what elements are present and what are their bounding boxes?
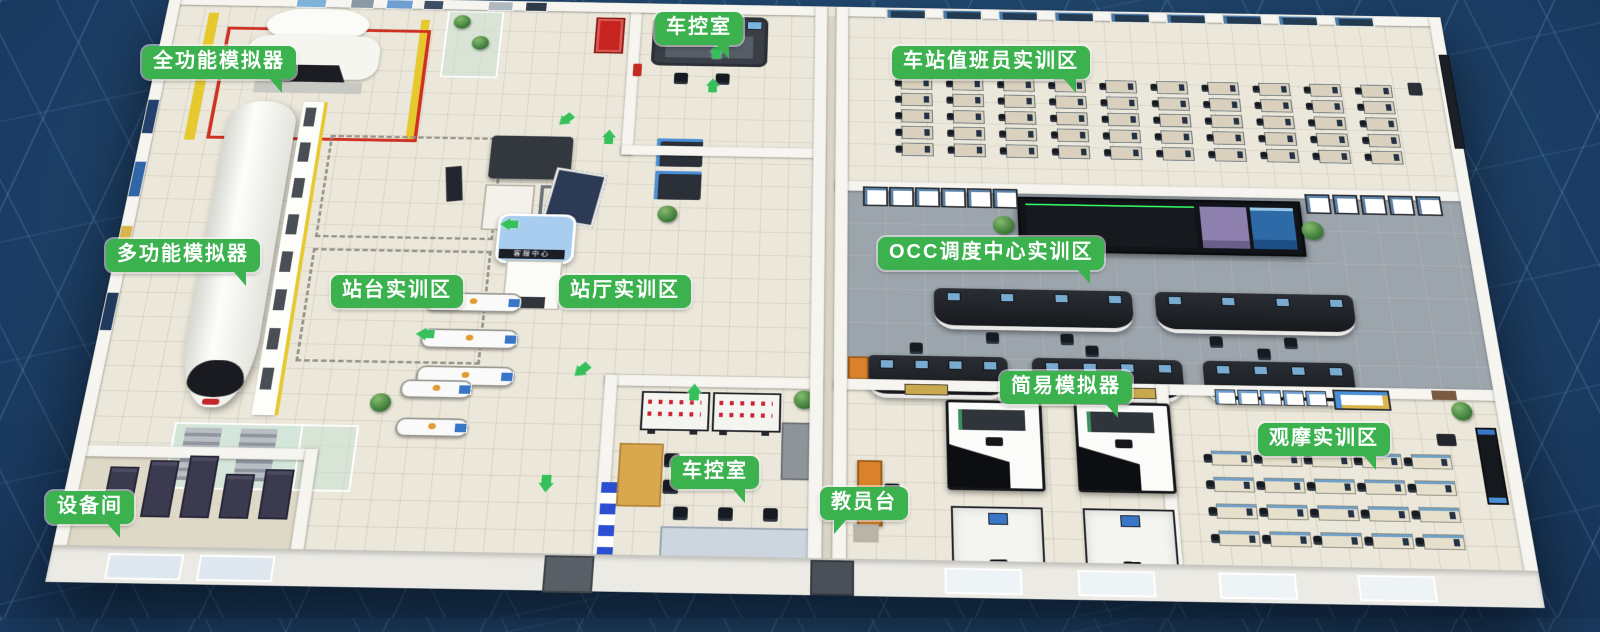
area-label-occ-dispatch-center-training-area: OCC调度中心实训区	[878, 237, 1104, 270]
label-tail	[233, 271, 246, 286]
label-tail	[107, 523, 120, 538]
labels-layer: 全功能模拟器车控室车站值班员实训区多功能模拟器站台实训区站厅实训区OCC调度中心…	[0, 0, 1600, 618]
label-tail	[1105, 403, 1118, 418]
label-tail	[732, 488, 745, 503]
area-label-full-function-simulator: 全功能模拟器	[142, 46, 296, 79]
area-label-station-hall-training-area: 站厅实训区	[559, 275, 691, 308]
label-tail	[269, 78, 282, 93]
area-label-train-control-room-bottom: 车控室	[671, 456, 759, 489]
area-label-observation-training-area: 观摩实训区	[1258, 423, 1390, 456]
label-tail	[716, 44, 729, 59]
area-label-multi-function-simulator: 多功能模拟器	[106, 239, 260, 272]
area-label-instructor-station: 教员台	[820, 487, 908, 520]
screenshot-root: { "scene": { "description_labels_languag…	[0, 0, 1600, 618]
area-label-simple-simulator: 简易模拟器	[1000, 371, 1132, 404]
area-label-equipment-room: 设备间	[46, 491, 134, 524]
area-label-platform-training-area: 站台实训区	[331, 275, 463, 308]
area-label-station-attendant-training-area: 车站值班员实训区	[892, 46, 1090, 79]
label-tail	[1363, 455, 1376, 470]
label-tail	[1063, 78, 1076, 93]
area-label-train-control-room-top: 车控室	[655, 12, 743, 45]
label-tail	[834, 519, 847, 534]
label-tail	[1077, 269, 1090, 284]
